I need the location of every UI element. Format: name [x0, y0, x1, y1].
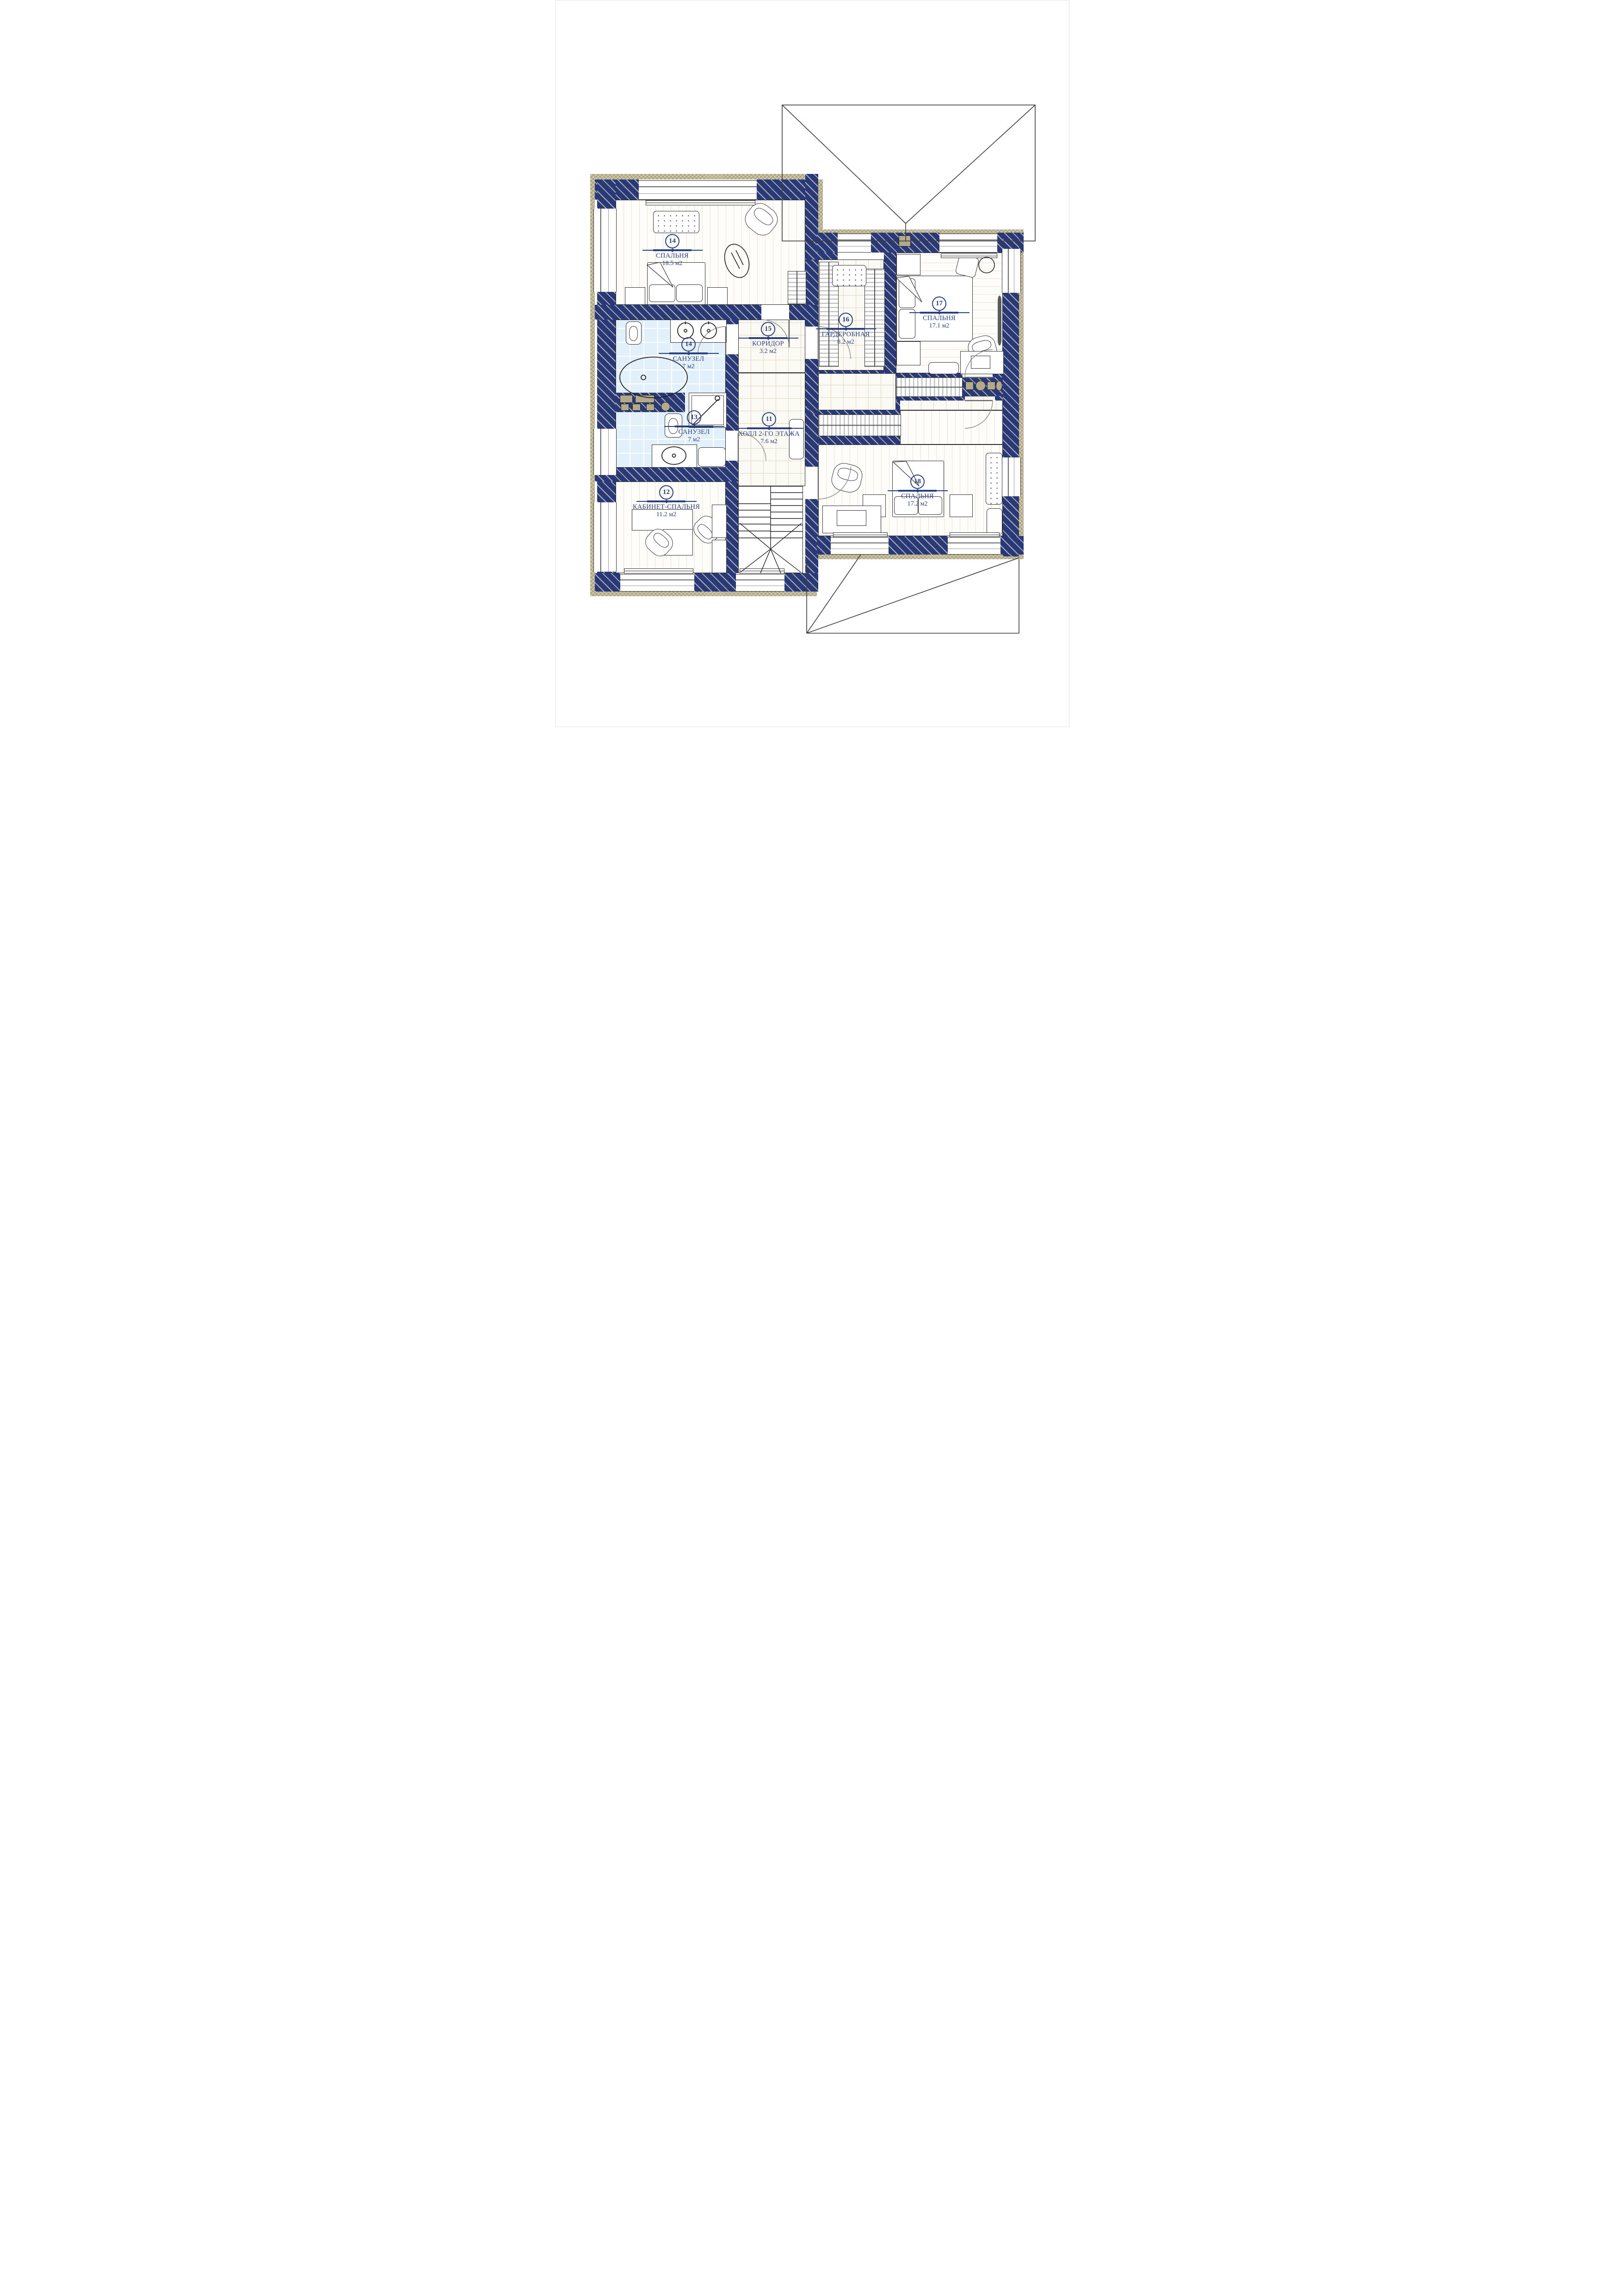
radiator: [833, 532, 888, 537]
room-label-bedroom-14: 14 СПАЛЬНЯ 18.5 м2: [638, 234, 707, 267]
label-divider: [816, 328, 876, 329]
duct-box: [632, 404, 641, 411]
room-label-bathroom-13: 13 САНУЗЕЛ 7 м2: [660, 410, 729, 444]
wall-segment: [889, 536, 948, 555]
cabinet: [712, 540, 727, 573]
label-divider: [664, 426, 724, 427]
window: [1002, 249, 1021, 293]
nightstand: [707, 287, 728, 305]
window: [736, 574, 784, 592]
radiator: [740, 568, 784, 574]
wall-segment: [817, 536, 831, 555]
vanity-sink: [652, 444, 697, 468]
radiator: [941, 253, 997, 258]
room-name: ХОЛЛ 2-ГО ЭТАЖА: [730, 430, 809, 438]
duct-box: [646, 404, 655, 411]
window: [831, 537, 889, 555]
chimney: [899, 235, 911, 247]
label-divider: [738, 338, 798, 339]
room-number: 18: [910, 475, 925, 489]
room-number: 14: [681, 337, 696, 352]
label-divider: [636, 501, 697, 502]
floor-plan-sheet: 14 СПАЛЬНЯ 18.5 м2 14 САНУЗЕЛ 7 м2 13 СА…: [555, 0, 1069, 727]
window: [639, 180, 757, 200]
label-divider: [735, 428, 804, 429]
wall-segment: [1000, 536, 1024, 555]
wall-segment: [805, 174, 818, 234]
room-area: 3.2 м2: [734, 348, 803, 355]
room-area: 17.2 м2: [883, 500, 952, 508]
room-label-bathroom-14: 14 САНУЗЕЛ 7 м2: [654, 337, 723, 370]
monitor: [971, 356, 990, 369]
room-name: ГАРДЕРОБНАЯ: [811, 331, 881, 339]
window: [1002, 457, 1021, 496]
insulation-bottom-left-wing: [595, 592, 817, 596]
wall-segment: [995, 396, 1003, 401]
duct-box: [621, 404, 629, 411]
wall-segment: [597, 179, 616, 209]
wall-tv: [998, 296, 1001, 346]
duct-pipe: [661, 402, 670, 411]
shelf-basket: [996, 381, 1002, 391]
room-label-bedroom-18: 18 СПАЛЬНЯ 17.2 м2: [883, 475, 952, 508]
room-number: 15: [761, 322, 775, 336]
wall-segment: [595, 305, 761, 320]
room-number: 16: [839, 313, 853, 327]
cabinet: [712, 505, 727, 538]
closet-rack: [818, 414, 901, 436]
wall-segment: [817, 233, 838, 253]
room-area: 7.6 м2: [730, 438, 809, 445]
insulation-upper-right-edge: [818, 179, 823, 229]
duct-box: [635, 395, 655, 403]
radiator: [624, 568, 693, 574]
room-name: КАБИНЕТ-СПАЛЬНЯ: [632, 503, 701, 511]
insulation-top-left-wing: [595, 174, 818, 179]
tv: [837, 510, 866, 526]
wall-segment: [784, 573, 818, 592]
room-label-hall-11: 11 ХОЛЛ 2-ГО ЭТАЖА 7.6 м2: [730, 412, 809, 445]
window: [593, 502, 617, 572]
room-area: 8.2 м2: [811, 339, 881, 346]
radiator: [646, 200, 755, 205]
bench-tufted: [832, 265, 866, 286]
wall-segment: [805, 410, 900, 414]
room-number: 11: [762, 412, 776, 426]
roof-bottom-right: [807, 555, 1019, 633]
wall-segment: [805, 499, 818, 573]
shelf-box: [965, 382, 974, 390]
room-area: 17.1 м2: [905, 322, 974, 330]
nightstand: [896, 254, 920, 275]
bench-tufted: [653, 211, 699, 233]
floor-passage: [818, 373, 896, 410]
room-name: СПАЛЬНЯ: [905, 315, 974, 322]
shelf-box: [987, 382, 995, 390]
wall-segment: [884, 253, 896, 373]
room-label-office-12: 12 КАБИНЕТ-СПАЛЬНЯ 11.2 м2: [632, 485, 701, 518]
room-label-bedroom-17: 17 СПАЛЬНЯ 17.1 м2: [905, 296, 974, 330]
room-label-corridor-15: 15 КОРИДОР 3.2 м2: [734, 322, 803, 355]
shelf-basket: [976, 381, 986, 391]
wall-segment: [726, 461, 738, 468]
bidet: [626, 321, 642, 345]
floor-bedroom-18-east: [900, 410, 1003, 444]
insulation-bottom-right-wing: [817, 555, 1024, 559]
room-label-wardrobe-16: 16 ГАРДЕРОБНАЯ 8.2 м2: [811, 313, 881, 346]
room-area: 11.2 м2: [632, 511, 701, 518]
window: [620, 574, 694, 592]
closet-rack: [896, 377, 963, 397]
room-number: 17: [932, 296, 946, 311]
window: [838, 234, 871, 253]
ottoman: [987, 508, 1002, 535]
room-name: СПАЛЬНЯ: [883, 493, 952, 500]
room-number: 13: [687, 410, 701, 425]
wall-segment: [726, 481, 738, 573]
label-divider: [659, 353, 719, 354]
wall-segment: [805, 259, 818, 305]
pillow: [649, 284, 675, 302]
room-name: СПАЛЬНЯ: [638, 252, 707, 260]
nightstand: [896, 341, 920, 365]
label-divider: [888, 490, 948, 491]
label-divider: [642, 250, 703, 251]
bath-cabinet: [698, 447, 726, 467]
room-number: 12: [659, 485, 673, 500]
nightstand: [625, 287, 645, 305]
window: [939, 234, 997, 253]
pillow: [676, 284, 703, 302]
wall-segment: [818, 435, 900, 444]
label-divider: [909, 312, 969, 313]
room-name: КОРИДОР: [734, 340, 803, 348]
ottoman: [928, 362, 959, 374]
window: [593, 209, 617, 292]
wall-segment: [1003, 293, 1019, 457]
room-area: 7 м2: [660, 436, 729, 444]
room-name: САНУЗЕЛ: [654, 355, 723, 363]
wall-segment: [805, 359, 818, 373]
room-area: 7 м2: [654, 363, 723, 370]
closet-rack: [788, 271, 806, 304]
radiator: [950, 532, 1000, 537]
room-area: 18.5 м2: [638, 260, 707, 267]
bench-tufted: [986, 453, 1002, 505]
room-number: 14: [665, 234, 679, 248]
window: [948, 537, 1000, 555]
nightstand: [950, 494, 973, 517]
wall-segment: [694, 573, 736, 592]
room-name: САНУЗЕЛ: [660, 428, 729, 436]
wall-segment: [1003, 233, 1019, 249]
wall-segment: [818, 370, 884, 373]
floor-staircase: [738, 486, 803, 573]
wall-segment: [595, 573, 620, 592]
duct-box: [620, 395, 633, 403]
window: [593, 429, 617, 475]
